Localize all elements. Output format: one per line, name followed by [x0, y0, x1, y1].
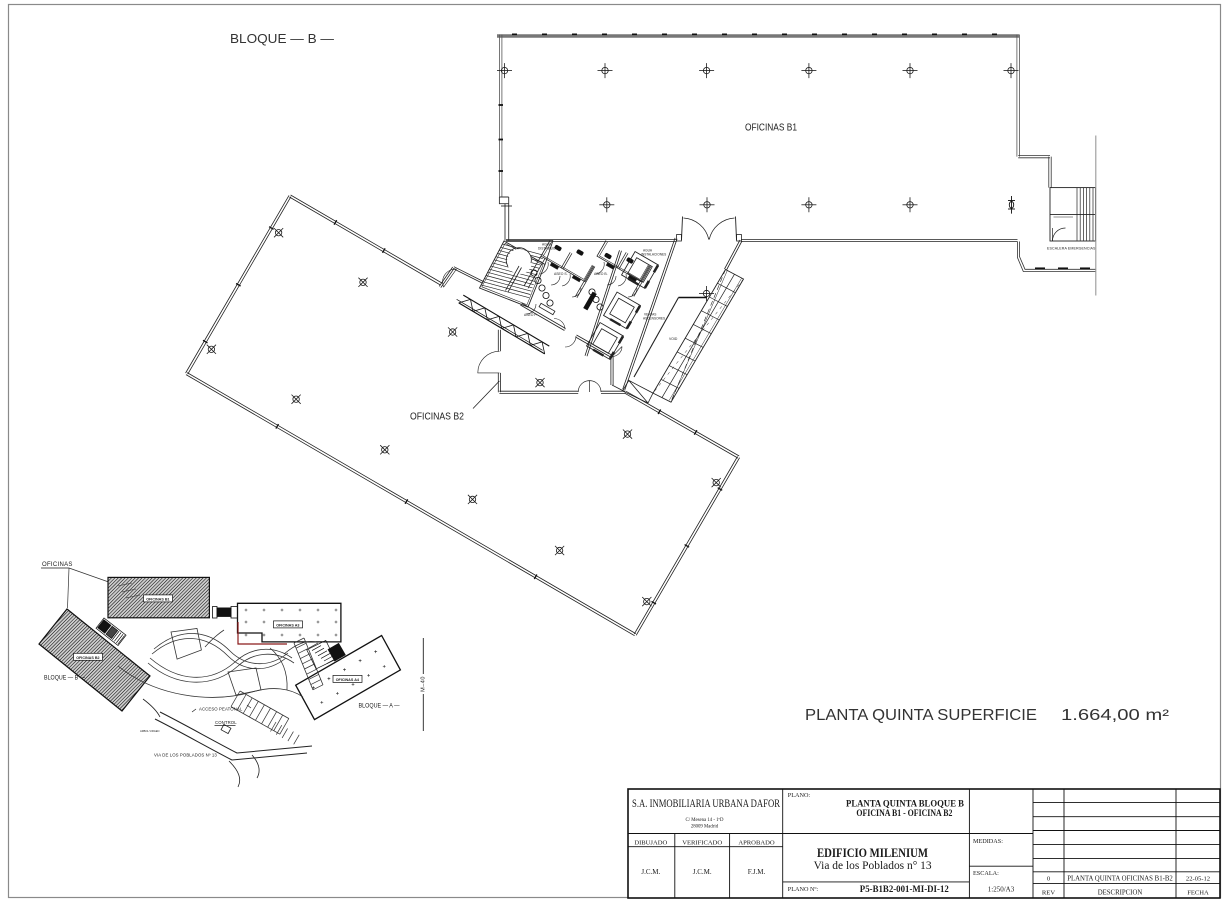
svg-text:J.C.M.: J.C.M.	[693, 868, 712, 876]
svg-text:CONTROL: CONTROL	[215, 720, 237, 725]
svg-text:22-05-12: 22-05-12	[1186, 876, 1210, 883]
svg-text:M–40: M–40	[421, 676, 427, 692]
svg-text:VIA DE LOS POBLADOS Nº 13: VIA DE LOS POBLADOS Nº 13	[154, 753, 217, 758]
svg-text:APROBADO: APROBADO	[738, 839, 775, 846]
svg-text:J.C.M.: J.C.M.	[641, 868, 660, 876]
svg-text:OFICINAS B1: OFICINAS B1	[146, 597, 169, 601]
svg-text:ASEO S.: ASEO S.	[554, 272, 568, 276]
svg-text:ASEO F.: ASEO F.	[524, 313, 537, 317]
svg-text:OFICINAS: OFICINAS	[42, 562, 73, 568]
svg-text:C/ Mesena 14 - 1ºD: C/ Mesena 14 - 1ºD	[686, 817, 725, 823]
svg-text:1:250/A3: 1:250/A3	[988, 886, 1015, 894]
svg-text:DIBUJADO: DIBUJADO	[634, 839, 667, 846]
svg-text:REV: REV	[1042, 890, 1055, 897]
svg-text:FECHA: FECHA	[1187, 890, 1209, 897]
svg-text:ARBOL VIRGEN: ARBOL VIRGEN	[140, 729, 159, 733]
svg-text:PLANTA QUINTA SUPERFICIE: PLANTA QUINTA SUPERFICIE	[805, 707, 1037, 724]
svg-text:ESCALERA EMERGENCIAS: ESCALERA EMERGENCIAS	[1047, 247, 1096, 251]
svg-text:S.A. INMOBILIARIA URBANA DAFOR: S.A. INMOBILIARIA URBANA DAFOR	[632, 798, 780, 810]
svg-text:PLANO Nº:: PLANO Nº:	[788, 886, 819, 893]
svg-text:OFICINAS A3: OFICINAS A3	[276, 623, 299, 627]
svg-text:OFICINAS B2: OFICINAS B2	[76, 656, 99, 660]
svg-text:BLOQUE — B —: BLOQUE — B —	[230, 31, 334, 46]
svg-text:OFICINAS A4: OFICINAS A4	[336, 678, 360, 682]
svg-text:ESCALA:: ESCALA:	[973, 870, 999, 877]
svg-text:F.J.M.: F.J.M.	[748, 868, 766, 876]
svg-text:BLOQUE — A —: BLOQUE — A —	[359, 704, 400, 710]
svg-text:OFICINA B1 - OFICINA B2: OFICINA B1 - OFICINA B2	[856, 808, 952, 819]
svg-text:MEDIDAS:: MEDIDAS:	[973, 838, 1003, 845]
svg-text:OFICINAS B1: OFICINAS B1	[745, 123, 797, 134]
svg-text:P5-B1B2-001-MI-DI-12: P5-B1B2-001-MI-DI-12	[860, 884, 949, 895]
svg-text:OFICINAS B2: OFICINAS B2	[410, 412, 464, 423]
svg-text:DESCRIPCION: DESCRIPCION	[1098, 890, 1143, 897]
svg-text:Via de los Poblados n° 13: Via de los Poblados n° 13	[814, 860, 932, 872]
svg-text:1.664,00 m²: 1.664,00 m²	[1061, 707, 1169, 724]
svg-text:VOID: VOID	[669, 337, 678, 341]
svg-text:PLANO:: PLANO:	[788, 792, 811, 799]
svg-text:ASEO B.: ASEO B.	[594, 272, 608, 276]
svg-text:INSTALACIONES: INSTALACIONES	[641, 253, 666, 257]
svg-text:BLOQUE — B —: BLOQUE — B —	[44, 676, 85, 682]
svg-text:28009 Madrid: 28009 Madrid	[691, 825, 719, 830]
svg-text:ACCESO PEATONAL: ACCESO PEATONAL	[199, 707, 243, 712]
svg-text:EDIFICIO MILENIUM: EDIFICIO MILENIUM	[817, 846, 928, 860]
svg-text:PLANTA QUINTA OFICINAS B1-B2: PLANTA QUINTA OFICINAS B1-B2	[1067, 876, 1173, 883]
svg-text:VERIFICADO: VERIFICADO	[682, 839, 722, 846]
